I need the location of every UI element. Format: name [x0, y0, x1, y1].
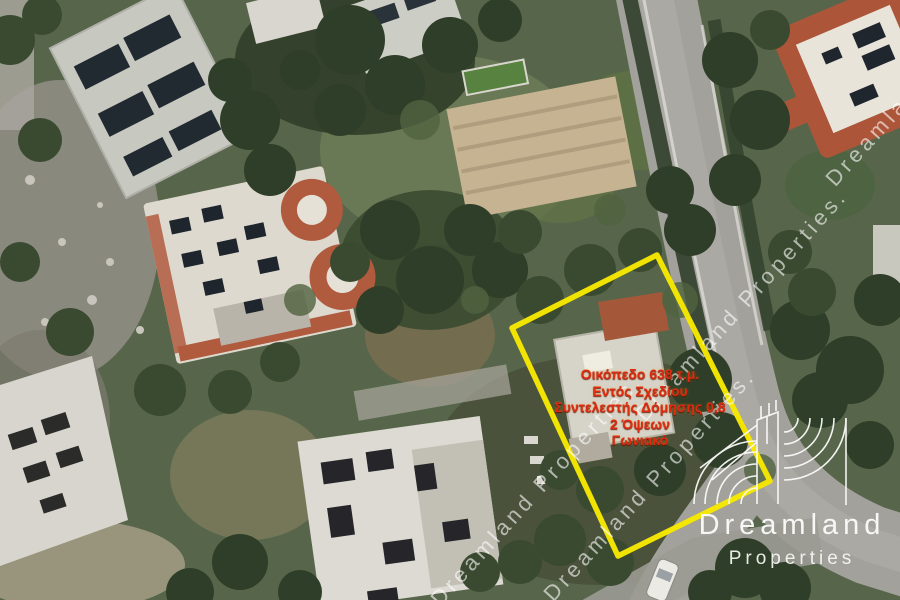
listing-aerial-image: Dreamland Properties. Dreamland Properti… [0, 0, 900, 600]
dreamland-logo-tagline: Properties [712, 548, 872, 570]
plot-annotation-line: Συντελεστής Δόμησης 0,8 [505, 399, 775, 416]
plot-annotation-line: Οικόπεδο 638 τ.μ. [505, 366, 775, 383]
plot-annotation-line: Γωνιακό [505, 432, 775, 449]
plot-annotation-line: 2 Όψεων [505, 416, 775, 433]
dreamland-logo-name: Dreamland [694, 509, 890, 542]
plot-annotation: Οικόπεδο 638 τ.μ. Εντός Σχεδίου Συντελεσ… [505, 366, 775, 449]
plot-annotation-line: Εντός Σχεδίου [505, 383, 775, 400]
